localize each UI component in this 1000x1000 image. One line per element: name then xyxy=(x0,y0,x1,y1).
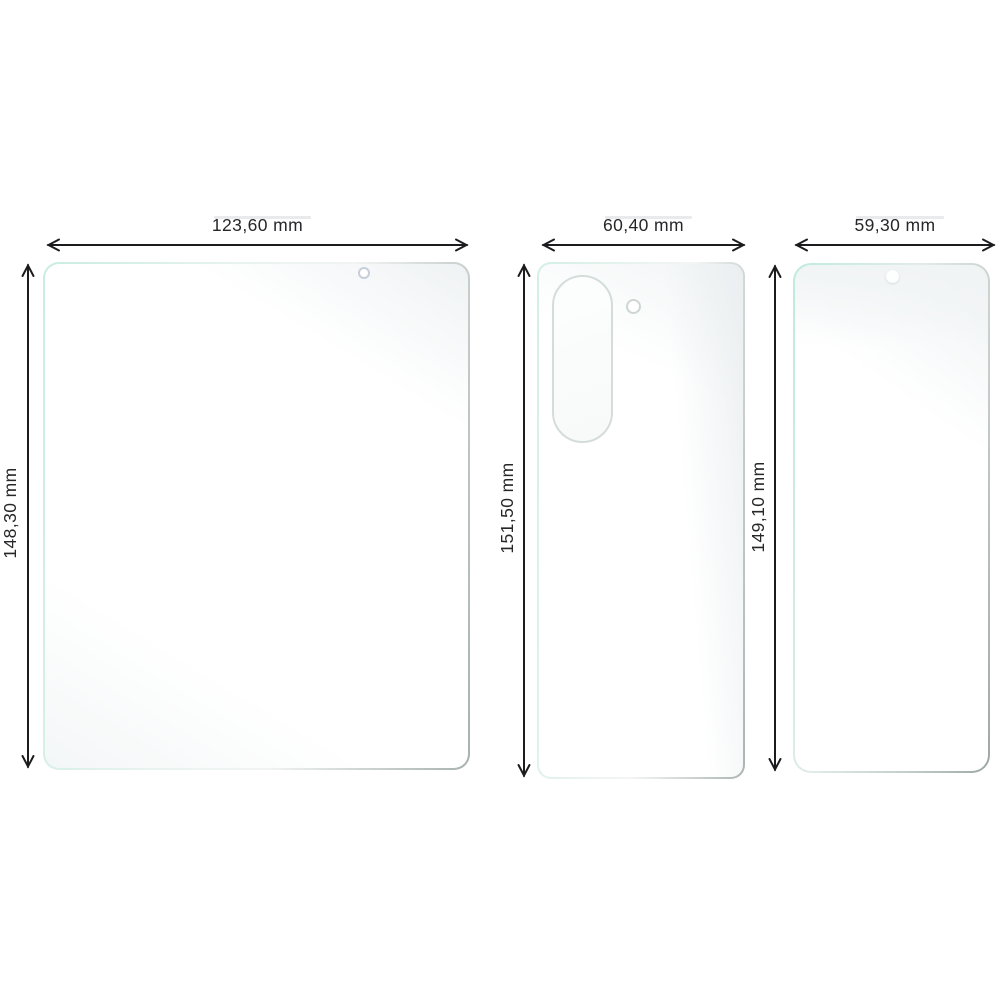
film-surface xyxy=(45,264,468,768)
camera-hole-icon xyxy=(886,270,899,283)
height-dimension-label: 149,10 mm xyxy=(747,437,769,577)
width-dimension-label: 123,60 mm xyxy=(45,214,470,236)
inner-display-film-shape xyxy=(43,262,470,770)
camera-island-cutout-icon xyxy=(552,275,613,443)
width-dimension-arrow xyxy=(793,237,997,253)
camera-hole-icon xyxy=(358,267,370,279)
back-panel-film-shape xyxy=(537,262,745,779)
height-dimension-arrow xyxy=(767,263,783,773)
height-dimension-label: 148,30 mm xyxy=(0,443,21,583)
height-dimension-arrow xyxy=(516,262,532,779)
flash-hole-icon xyxy=(626,299,641,314)
height-dimension-arrow xyxy=(20,262,36,770)
width-dimension-arrow xyxy=(45,237,470,253)
film-surface xyxy=(795,265,988,771)
height-dimension-label: 151,50 mm xyxy=(496,438,518,578)
width-value: 59,30 mm xyxy=(854,214,935,236)
width-dimension-arrow xyxy=(540,237,747,253)
width-value: 123,60 mm xyxy=(212,214,303,236)
width-dimension-label: 59,30 mm xyxy=(793,214,997,236)
screen-protector-dimension-diagram: 123,60 mm 148,30 mm 60,40 mm 151,50 mm 5… xyxy=(0,0,1000,1000)
width-dimension-label: 60,40 mm xyxy=(540,214,747,236)
cover-display-film-shape xyxy=(793,263,990,773)
width-value: 60,40 mm xyxy=(603,214,684,236)
